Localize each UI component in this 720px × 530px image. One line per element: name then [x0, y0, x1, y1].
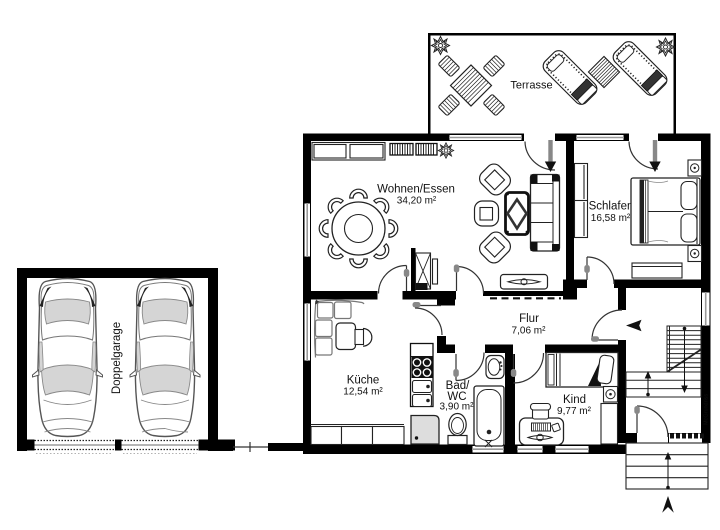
svg-text:Kind: Kind — [563, 394, 586, 406]
svg-text:12,54 m²: 12,54 m² — [343, 387, 383, 398]
svg-text:Schlafen: Schlafen — [589, 201, 634, 213]
svg-text:16,58 m²: 16,58 m² — [591, 213, 631, 224]
svg-text:Terrasse: Terrasse — [510, 80, 552, 92]
svg-text:Doppelgarage: Doppelgarage — [111, 322, 123, 394]
svg-text:34,20 m²: 34,20 m² — [397, 196, 437, 207]
svg-text:McGrundriss: McGrundriss — [704, 394, 710, 425]
svg-text:3,90 m²: 3,90 m² — [440, 402, 475, 413]
svg-text:7,06 m²: 7,06 m² — [512, 326, 547, 337]
svg-text:Wohnen/Essen: Wohnen/Essen — [377, 184, 455, 196]
svg-text:Küche: Küche — [347, 375, 380, 387]
svg-text:Flur: Flur — [519, 313, 539, 325]
svg-text:9,77 m²: 9,77 m² — [557, 406, 592, 417]
